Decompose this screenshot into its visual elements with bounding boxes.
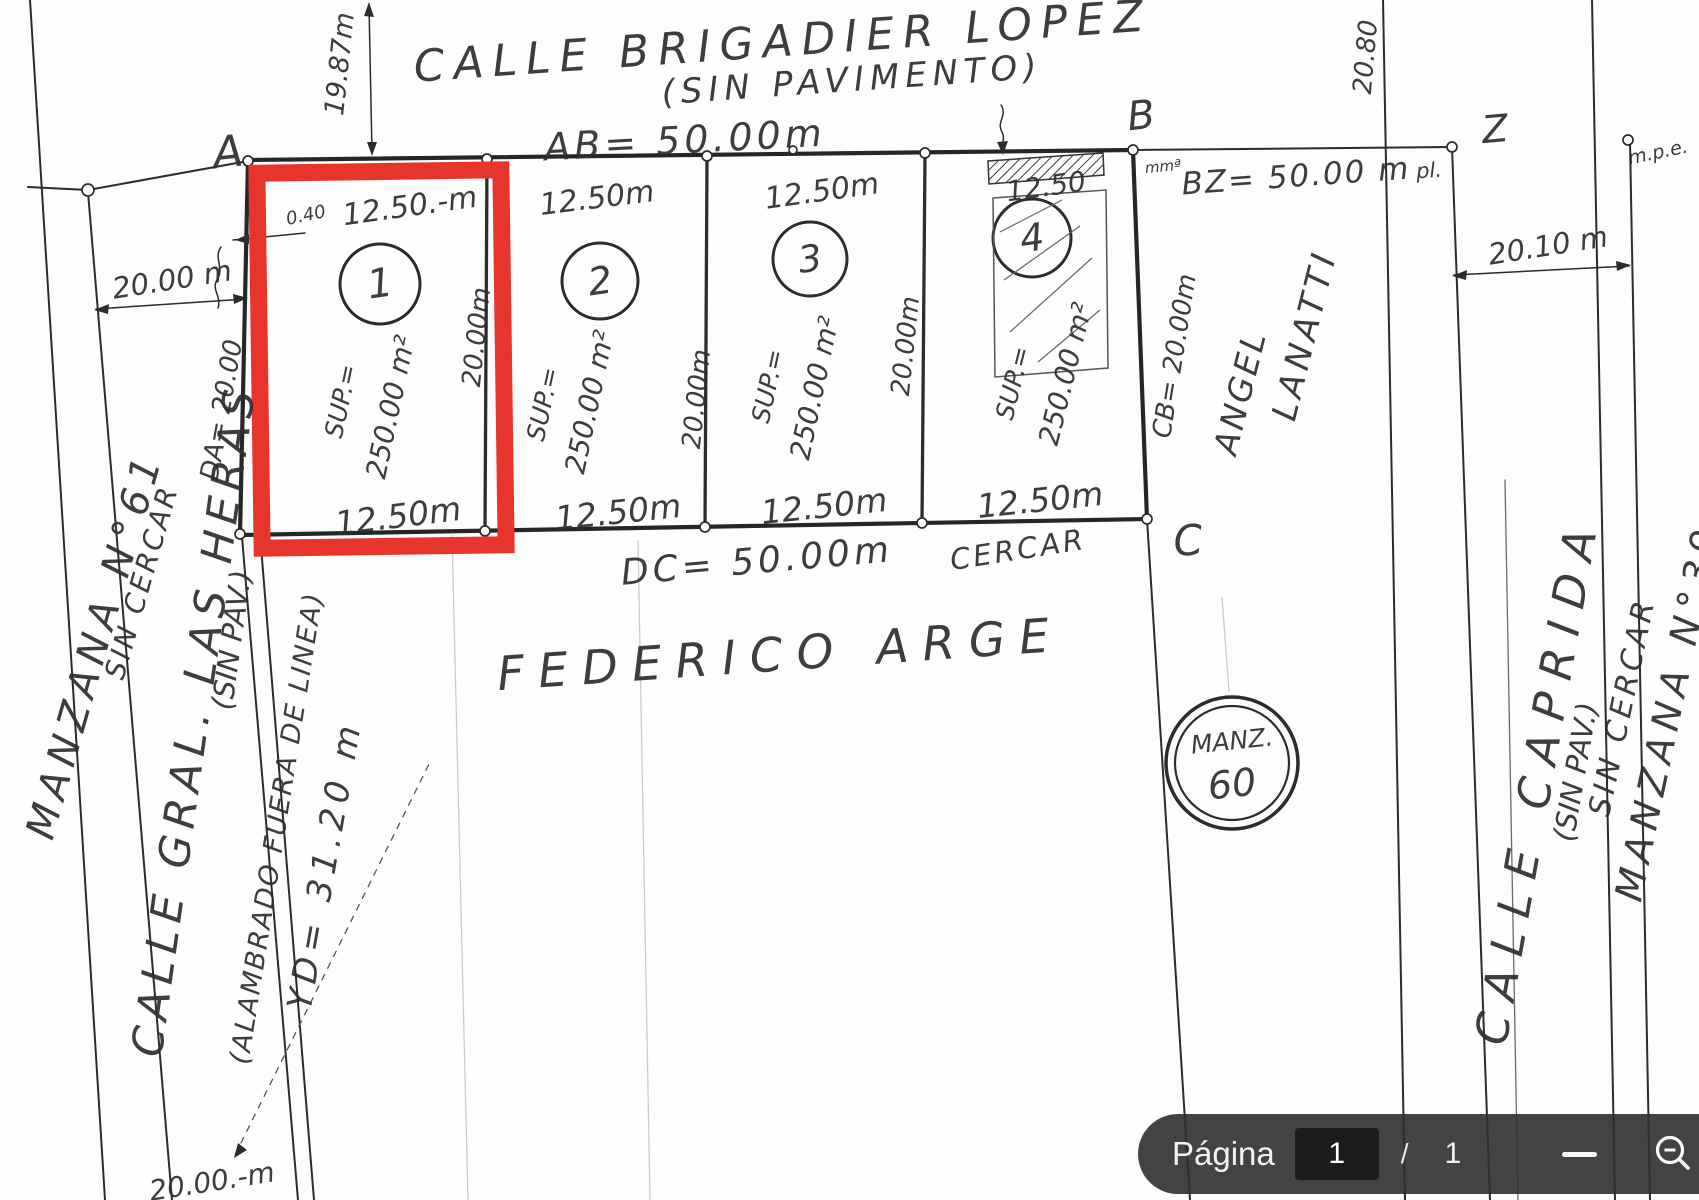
lot1-number: 1	[365, 262, 396, 305]
dim-bz-note: pl.	[1415, 160, 1442, 183]
page-total: 1	[1445, 1137, 1462, 1171]
lot2-number: 2	[585, 261, 614, 302]
page-divider: /	[1401, 1138, 1409, 1170]
pdf-viewer-canvas: CALLE BRIGADIER LOPEZ (SIN PAVIMENTO) AB…	[0, 0, 1699, 1200]
corner-label-a: A	[211, 130, 246, 177]
corner-label-c: C	[1172, 519, 1205, 563]
lot4-number: 4	[1017, 218, 1046, 259]
magnifier-minus-icon	[1651, 1132, 1695, 1176]
lot3-number: 3	[796, 239, 824, 279]
dim-east-depth: 20.80	[1350, 19, 1382, 95]
magnifier-zoom-button[interactable]	[1649, 1130, 1697, 1178]
minus-icon	[1562, 1152, 1597, 1157]
zoom-out-button[interactable]	[1557, 1132, 1601, 1176]
page-number-input[interactable]: 1	[1295, 1128, 1379, 1180]
scribble-note: mmª	[1144, 158, 1181, 176]
manzana-60-number: 60	[1206, 763, 1258, 806]
corner-label-z: Z	[1480, 109, 1509, 149]
page-label: Página	[1172, 1135, 1275, 1173]
corner-label-b: B	[1125, 95, 1156, 138]
pdf-toolbar: Página 1 / 1	[1138, 1114, 1699, 1194]
